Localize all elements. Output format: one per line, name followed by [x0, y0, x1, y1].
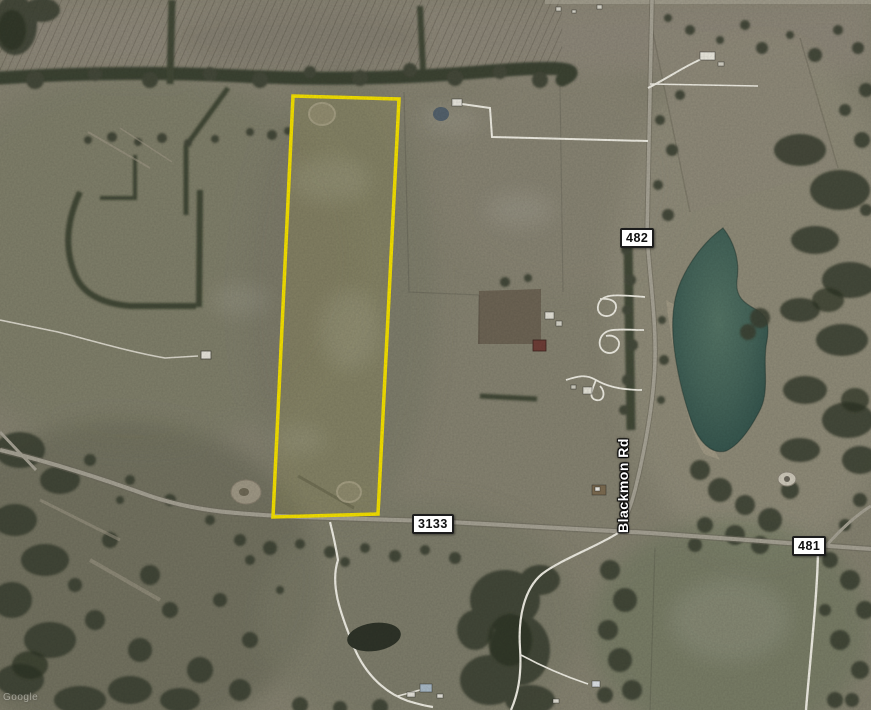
road-label-481: 481	[792, 536, 826, 556]
street-label-blackmon-rd: Blackmon Rd	[615, 438, 631, 533]
satellite-map	[0, 0, 871, 710]
road-label-482: 482	[620, 228, 654, 248]
photo-grain	[0, 0, 871, 710]
map-watermark: Google	[3, 692, 38, 703]
road-label-3133: 3133	[412, 514, 454, 534]
aerial-map-image: 482 3133 481 Blackmon Rd Google	[0, 0, 871, 710]
